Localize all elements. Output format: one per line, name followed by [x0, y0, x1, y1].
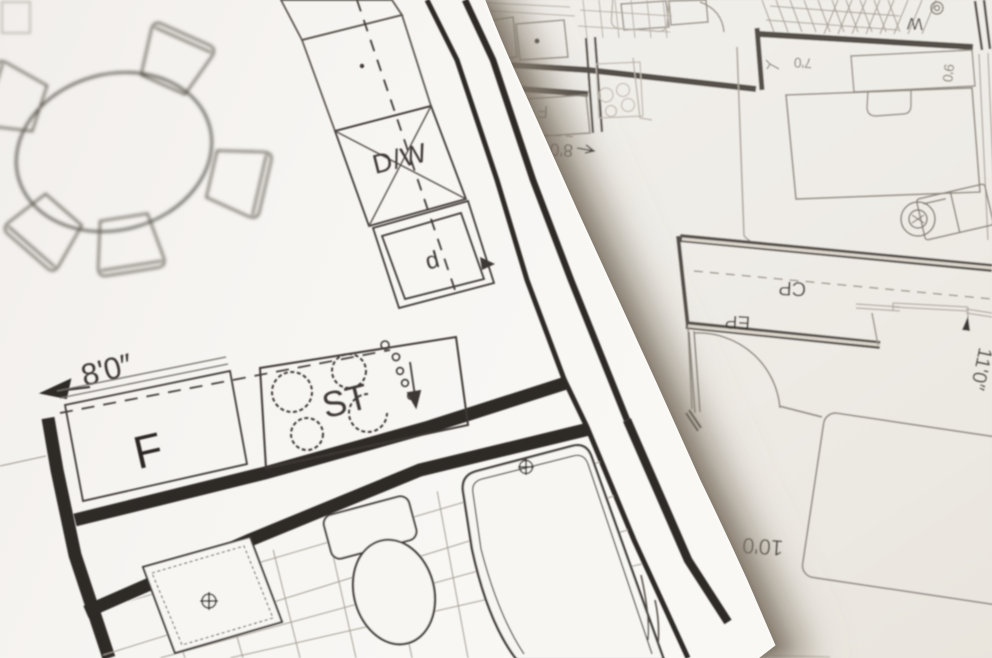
svg-text:W: W	[907, 14, 924, 34]
svg-text:EP: EP	[724, 310, 750, 332]
svg-text:7'0: 7'0	[793, 55, 812, 72]
svg-text:CP: CP	[778, 276, 807, 299]
svg-text:9'0: 9'0	[940, 63, 958, 83]
